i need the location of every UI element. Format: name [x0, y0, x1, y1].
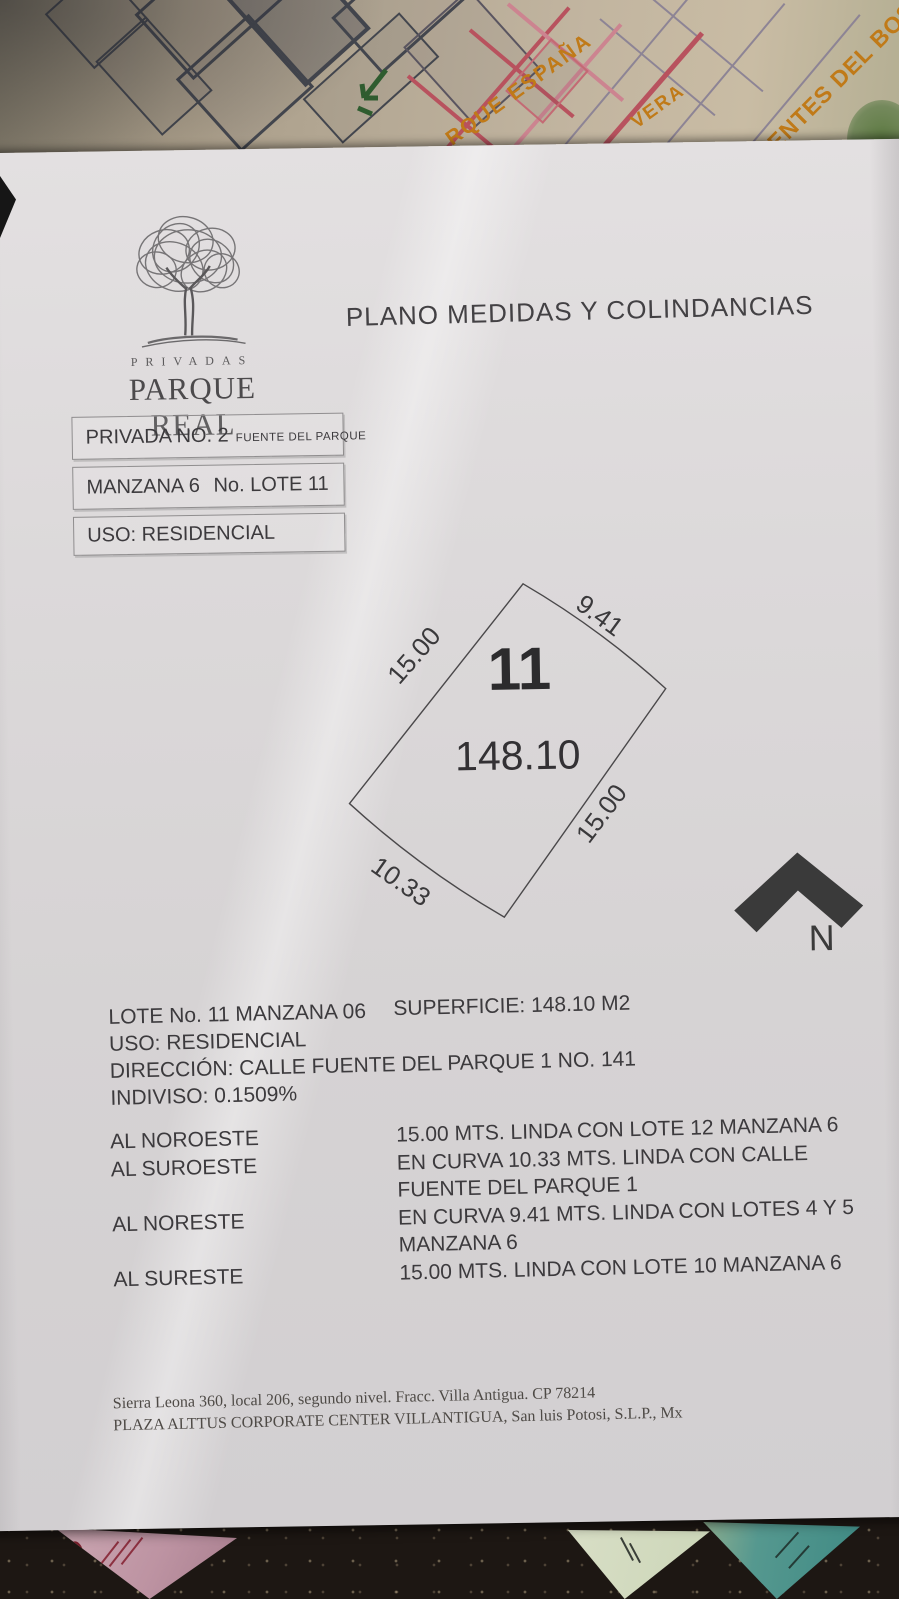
north-letter: N — [808, 917, 835, 958]
lot-number: 11 — [487, 634, 552, 704]
uso-label: USO: RESIDENCIAL — [87, 522, 275, 548]
boundary-direction: AL NORESTE — [112, 1204, 399, 1266]
manzana-label: MANZANA 6 — [86, 475, 200, 500]
teal-paper-scrap — [700, 1522, 860, 1599]
pink-scrap-hatch — [121, 1537, 144, 1565]
uso-box: USO: RESIDENCIAL — [73, 513, 346, 556]
lot-diagram: 15.00 9.41 11 148.10 15.00 10.33 — [336, 566, 682, 931]
privada-label: PRIVADA NO. 2 — [86, 424, 229, 449]
teal-scrap-text-mark — [788, 1545, 810, 1569]
photo-of-document: { "logo": { "privadas": "PRIVADAS", "par… — [0, 0, 899, 1599]
footer-address: Sierra Leona 360, local 206, segundo niv… — [113, 1380, 683, 1437]
pink-paper-scrap: D — [55, 1528, 237, 1599]
privada-box: PRIVADA NO. 2 FUENTE DEL PARQUE — [71, 413, 344, 460]
north-arrow-chevron-icon — [733, 852, 863, 933]
privada-sublabel: FUENTE DEL PARQUE — [236, 430, 367, 444]
lote-manzana-value: LOTE No. 11 MANZANA 06 — [108, 1000, 366, 1029]
boundary-direction: AL SUROESTE — [111, 1149, 398, 1211]
pink-scrap-letter: D — [61, 1534, 90, 1564]
page-title: PLANO MEDIDAS Y COLINDANCIAS — [345, 290, 813, 333]
manzana-lote-box: MANZANA 6 No. LOTE 11 — [72, 463, 345, 510]
teal-scrap-text-mark — [775, 1532, 799, 1559]
green-paper-scrap — [552, 1530, 710, 1599]
boundary-direction: AL SURESTE — [113, 1259, 400, 1293]
boundaries-table: AL NOROESTE 15.00 MTS. LINDA CON LOTE 12… — [110, 1110, 884, 1293]
north-arrow: N — [712, 845, 874, 962]
logo-tree-icon — [114, 209, 268, 359]
logo-privadas-text: PRIVADAS — [84, 352, 299, 370]
document-paper: PRIVADAS PARQUE REAL PLANO MEDIDAS Y COL… — [0, 139, 899, 1532]
superficie-value: SUPERFICIE: 148.10 M2 — [393, 990, 631, 1023]
lot-area-value: 148.10 — [455, 731, 581, 780]
lot-details: LOTE No. 11 MANZANA 06 SUPERFICIE: 148.1… — [108, 989, 750, 1112]
lote-label: No. LOTE 11 — [213, 473, 329, 498]
